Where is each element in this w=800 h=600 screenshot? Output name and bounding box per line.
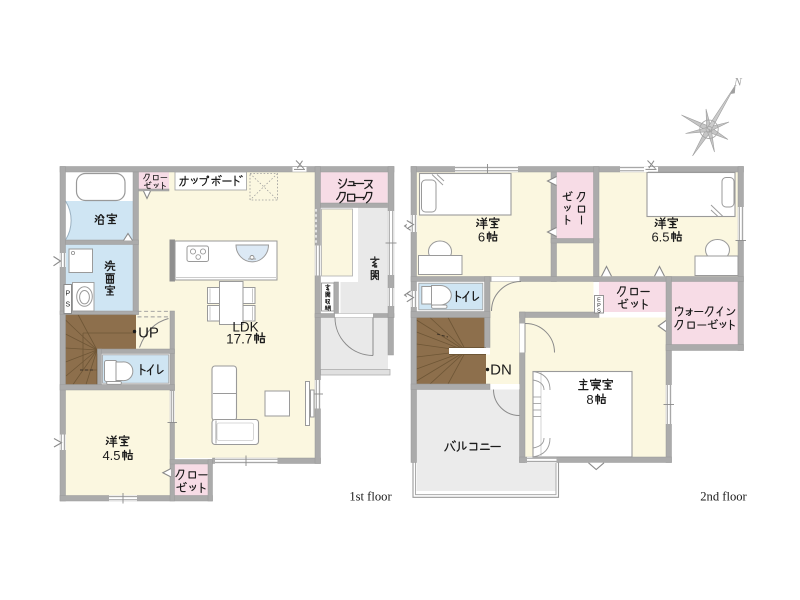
svg-text:N: N: [733, 77, 743, 89]
svg-text:1st floor: 1st floor: [349, 490, 392, 504]
svg-text:UP: UP: [138, 324, 159, 341]
svg-text:8: 8: [586, 392, 593, 407]
svg-text:17.7: 17.7: [226, 331, 252, 346]
svg-text:S: S: [597, 308, 601, 314]
svg-text:4.5: 4.5: [102, 448, 120, 463]
svg-text:DN: DN: [490, 362, 512, 379]
svg-text:2nd floor: 2nd floor: [700, 490, 747, 504]
svg-text:6: 6: [478, 230, 485, 245]
svg-text:P: P: [65, 291, 70, 298]
svg-text:6.5: 6.5: [651, 230, 669, 245]
svg-text:S: S: [65, 302, 70, 309]
